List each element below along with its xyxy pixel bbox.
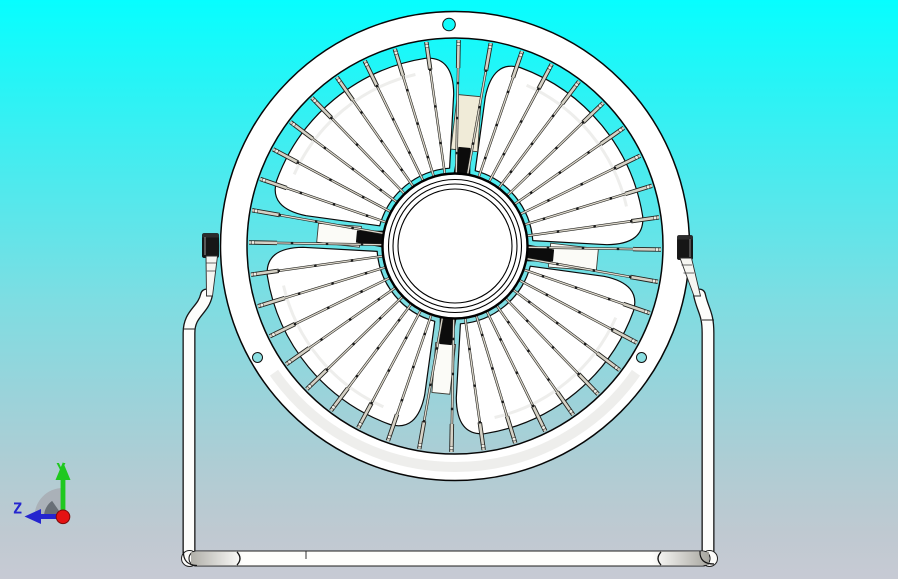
spoke-rivet-dot [392, 118, 395, 121]
spoke-rivet-dot [352, 343, 355, 346]
spoke-rivet-dot [329, 179, 332, 182]
spoke-rivet-dot [333, 203, 336, 206]
spoke-rivet-dot [577, 373, 580, 376]
spoke-rivet-dot [423, 420, 426, 423]
spoke-tip-rivet [635, 156, 639, 160]
spoke-rivet-dot [412, 366, 415, 369]
spoke-rivet-dot [507, 321, 510, 324]
spoke-rivet-dot [408, 151, 411, 154]
spoke-rivet-dot [361, 243, 364, 246]
base-tube[interactable] [189, 551, 710, 566]
spoke-rivet-dot [576, 207, 579, 210]
fan-model[interactable] [221, 12, 690, 481]
spoke-tip-rivet [457, 42, 461, 46]
spoke-tip-rivet [619, 128, 623, 132]
spoke-tip-rivet [358, 423, 362, 427]
right-arm-tube[interactable] [700, 295, 709, 553]
spoke-tip-rivet [425, 44, 429, 48]
spoke-rivet-dot [582, 121, 585, 124]
spoke-tip-rivet [332, 406, 336, 410]
spoke-rivet-dot [472, 142, 475, 145]
spoke-tip-rivet [254, 209, 258, 213]
spoke-rivet-dot [529, 172, 532, 175]
spoke-rivet-dot [484, 157, 487, 160]
spoke-rivet-dot [531, 142, 534, 145]
spoke-rivet-dot [457, 82, 460, 85]
spoke-tip-rivet [652, 279, 656, 283]
spoke-rivet-dot [330, 117, 333, 120]
spoke-rivet-dot [552, 346, 555, 349]
spoke-rivet-dot [298, 292, 301, 295]
spoke-rivet-dot [365, 272, 368, 275]
spoke-rivet-dot [297, 161, 300, 164]
spoke-tip-rivet [288, 360, 292, 364]
spoke-rivet-dot [439, 142, 442, 145]
spoke-rivet-dot [617, 248, 620, 251]
spoke-rivet-dot [356, 375, 359, 378]
spoke-rivet-dot [278, 214, 281, 217]
spoke-rivet-dot [315, 220, 318, 223]
spoke-rivet-dot [429, 384, 432, 387]
spoke-tip-rivet [632, 339, 636, 343]
spoke-rivet-dot [499, 338, 502, 341]
spoke-rivet-dot [388, 369, 391, 372]
spoke-rivet-dot [478, 421, 481, 424]
left-knob-cap [203, 234, 219, 238]
spoke-rivet-dot [555, 147, 558, 150]
spoke-rivet-dot [326, 368, 329, 371]
spoke-rivet-dot [547, 378, 550, 381]
spoke-rivet-dot [291, 242, 294, 245]
spoke-rivet-dot [324, 147, 327, 150]
spoke-rivet-dot [381, 170, 384, 173]
spoke-tip-rivet [488, 45, 492, 49]
spoke-rivet-dot [485, 69, 488, 72]
spoke-rivet-dot [630, 220, 633, 223]
spoke-rivet-dot [530, 191, 533, 194]
spoke-rivet-dot [532, 405, 535, 408]
rim-hole-top [443, 18, 456, 31]
spoke-rivet-dot [547, 199, 550, 202]
spoke-tip-rivet [655, 248, 659, 252]
spoke-rivet-dot [451, 408, 454, 411]
spoke-rivet-dot [575, 286, 578, 289]
spoke-rivet-dot [580, 183, 583, 186]
spoke-rivet-dot [473, 384, 476, 387]
spoke-rivet-dot [520, 120, 523, 123]
spoke-tip-rivet [418, 443, 422, 447]
spoke-rivet-dot [400, 169, 403, 172]
spoke-tip-rivet [646, 185, 650, 189]
base-left-shading [191, 552, 243, 565]
spoke-rivet-dot [351, 168, 354, 171]
spoke-rivet-dot [556, 263, 559, 266]
spoke-rivet-dot [376, 85, 379, 88]
spoke-rivet-dot [314, 264, 317, 267]
spoke-rivet-dot [507, 91, 510, 94]
spoke-tip-rivet [450, 446, 454, 450]
left-arm-tube[interactable] [189, 295, 207, 553]
spoke-rivet-dot [528, 301, 531, 304]
spoke-rivet-dot [380, 140, 383, 143]
spoke-rivet-dot [557, 230, 560, 233]
spoke-rivet-dot [378, 298, 381, 301]
spoke-rivet-dot [578, 311, 581, 314]
spoke-tip-rivet [251, 241, 255, 245]
spoke-tip-rivet [337, 79, 341, 83]
spoke-rivet-dot [451, 373, 454, 376]
spoke-tip-rivet [292, 123, 296, 127]
spoke-tip-rivet [599, 104, 603, 108]
spoke-rivet-dot [366, 214, 369, 217]
spoke-rivet-dot [398, 319, 401, 322]
spoke-rivet-dot [503, 153, 506, 156]
spoke-rivet-dot [300, 192, 303, 195]
right-knob-cap [678, 236, 693, 240]
spoke-tip-rivet [653, 216, 657, 220]
spoke-rivet-dot [294, 323, 297, 326]
fan-hub[interactable] [383, 174, 528, 319]
spoke-rivet-dot [327, 307, 330, 310]
spoke-rivet-dot [547, 246, 550, 249]
spoke-rivet-dot [543, 218, 546, 221]
spoke-rivet-dot [379, 317, 382, 320]
spoke-rivet-dot [614, 167, 617, 170]
spoke-rivet-dot [468, 348, 471, 351]
spoke-rivet-dot [360, 111, 363, 114]
spoke-rivet-dot [491, 367, 494, 370]
spoke-rivet-dot [587, 151, 590, 154]
rim-hole-right [637, 353, 647, 363]
spoke-rivet-dot [478, 106, 481, 109]
spoke-tip-rivet [569, 410, 573, 414]
spoke-tip-rivet [313, 99, 317, 103]
spoke-rivet-dot [455, 152, 458, 155]
spoke-rivet-dot [370, 402, 373, 405]
spoke-rivet-dot [516, 371, 519, 374]
spoke-tip-rivet [594, 390, 598, 394]
z-axis-label: Z [13, 500, 22, 518]
spoke-rivet-dot [429, 68, 432, 71]
cad-viewport[interactable]: Y Z [0, 0, 898, 579]
spoke-rivet-dot [377, 347, 380, 350]
spoke-rivet-dot [277, 269, 280, 272]
spoke-rivet-dot [552, 115, 555, 118]
spoke-tip-rivet [253, 272, 257, 276]
spoke-rivet-dot [406, 89, 409, 92]
spoke-rivet-dot [434, 105, 437, 108]
spoke-rivet-dot [436, 347, 439, 350]
spoke-rivet-dot [593, 269, 596, 272]
z-axis-arrow-icon [25, 509, 42, 524]
spoke-rivet-dot [546, 294, 549, 297]
spoke-tip-rivet [394, 51, 398, 55]
spoke-tip-rivet [365, 63, 369, 67]
spoke-rivet-dot [356, 143, 359, 146]
spoke-rivet-dot [629, 276, 632, 279]
spoke-rivet-dot [542, 275, 545, 278]
spoke-tip-rivet [272, 333, 276, 337]
spoke-rivet-dot [527, 350, 530, 353]
spoke-rivet-dot [331, 282, 334, 285]
spoke-tip-rivet [481, 444, 485, 448]
spoke-rivet-dot [526, 320, 529, 323]
spoke-rivet-dot [326, 242, 329, 245]
spoke-rivet-dot [510, 170, 513, 173]
spoke-tip-rivet [260, 303, 264, 307]
spoke-tip-rivet [519, 53, 523, 57]
rim-hole-left [253, 353, 263, 363]
spoke-rivet-dot [537, 88, 540, 91]
spoke-rivet-dot [582, 247, 585, 250]
spoke-tip-rivet [644, 310, 648, 314]
spoke-rivet-dot [611, 328, 614, 331]
y-axis-label: Y [57, 460, 66, 478]
spoke-rivet-dot [593, 225, 596, 228]
spoke-tip-rivet [615, 366, 619, 370]
left-clamp[interactable] [206, 256, 218, 296]
spoke-rivet-dot [351, 259, 354, 262]
spoke-rivet-dot [610, 197, 613, 200]
spoke-tip-rivet [275, 149, 279, 153]
orientation-triad: Y Z [13, 460, 71, 524]
scene-svg: Y Z [0, 0, 898, 579]
spoke-rivet-dot [320, 338, 323, 341]
spoke-tip-rivet [575, 83, 579, 87]
spoke-tip-rivet [542, 426, 546, 430]
spoke-rivet-dot [360, 290, 363, 293]
spoke-rivet-dot [608, 298, 611, 301]
spoke-rivet-dot [452, 338, 455, 341]
spoke-rivet-dot [351, 227, 354, 230]
spoke-rivet-dot [481, 334, 484, 337]
spoke-rivet-dot [423, 333, 426, 336]
spoke-rivet-dot [349, 318, 352, 321]
spoke-rivet-dot [501, 401, 504, 404]
spoke-rivet-dot [379, 189, 382, 192]
spoke-tip-rivet [308, 385, 312, 389]
spoke-rivet-dot [556, 322, 559, 325]
spoke-rivet-dot [559, 171, 562, 174]
spoke-rivet-dot [405, 337, 408, 340]
spoke-rivet-dot [495, 124, 498, 127]
spoke-tip-rivet [387, 435, 391, 439]
spoke-rivet-dot [401, 399, 404, 402]
spoke-tip-rivet [548, 66, 552, 70]
origin-dot-icon [56, 510, 70, 524]
spoke-rivet-dot [427, 156, 430, 159]
spoke-tip-rivet [262, 178, 266, 182]
spoke-rivet-dot [362, 196, 365, 199]
spoke-rivet-dot [416, 122, 419, 125]
spoke-rivet-dot [456, 117, 459, 120]
spoke-rivet-dot [584, 343, 587, 346]
spoke-tip-rivet [512, 437, 516, 441]
